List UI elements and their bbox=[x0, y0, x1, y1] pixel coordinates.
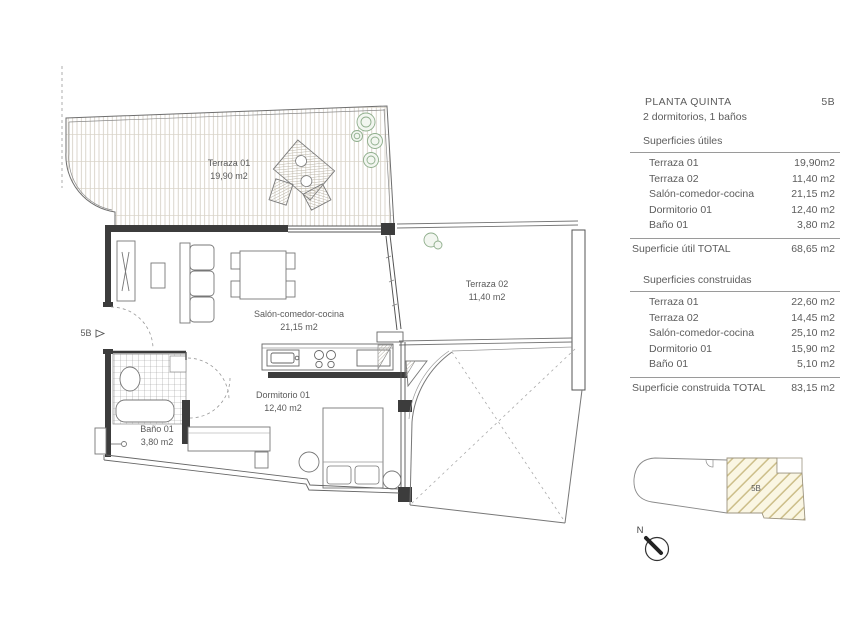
terraza2-name: Terraza 02 bbox=[466, 279, 509, 289]
row-value: 15,90 m2 bbox=[791, 342, 840, 358]
divider bbox=[630, 291, 840, 292]
pillow bbox=[327, 466, 351, 484]
plan-title: PLANTA QUINTA bbox=[645, 96, 732, 109]
kitchen bbox=[262, 344, 393, 370]
surface-row: Salón-comedor-cocina 25,10 m2 bbox=[630, 326, 840, 342]
total-label: Superficie útil TOTAL bbox=[632, 242, 731, 257]
row-label: Terraza 01 bbox=[649, 295, 699, 311]
side-table bbox=[151, 263, 165, 288]
row-value: 11,40 m2 bbox=[792, 172, 840, 188]
row-value: 25,10 m2 bbox=[791, 326, 840, 342]
row-value: 14,45 m2 bbox=[791, 311, 840, 327]
divider bbox=[630, 238, 840, 239]
dormitorio-name: Dormitorio 01 bbox=[256, 390, 310, 400]
row-label: Baño 01 bbox=[649, 357, 688, 373]
bathtub bbox=[116, 400, 174, 422]
row-value: 3,80 m2 bbox=[797, 218, 840, 234]
wardrobe bbox=[188, 427, 270, 451]
plan-subtitle: 2 dormitorios, 1 baños bbox=[643, 111, 840, 124]
terraza-02-area bbox=[397, 221, 585, 390]
panel-title-row: PLANTA QUINTA 5B bbox=[645, 96, 840, 109]
sofa-cushion bbox=[190, 245, 214, 270]
terraza1-name: Terraza 01 bbox=[208, 158, 251, 168]
cooktop-burner bbox=[316, 361, 322, 367]
shower-nook bbox=[170, 356, 186, 372]
row-label: Terraza 02 bbox=[649, 311, 699, 327]
door-handle-icon bbox=[122, 442, 127, 447]
divider bbox=[630, 152, 840, 153]
entrance-door-arc bbox=[111, 307, 153, 349]
sofa-cushion bbox=[190, 297, 214, 322]
row-value: 22,60 m2 bbox=[791, 295, 840, 311]
dormitorio-area: 12,40 m2 bbox=[264, 403, 302, 413]
nightstand bbox=[299, 452, 319, 472]
dining-table bbox=[240, 251, 286, 299]
terrace-side-wall bbox=[572, 230, 585, 390]
row-value: 21,15 m2 bbox=[791, 187, 840, 203]
row-label: Terraza 02 bbox=[649, 172, 699, 188]
row-label: Terraza 01 bbox=[649, 156, 699, 172]
row-value: 12,40 m2 bbox=[791, 203, 840, 219]
surface-row: Salón-comedor-cocina 21,15 m2 bbox=[630, 187, 840, 203]
open-roof-area bbox=[406, 347, 582, 523]
terraza2-area: 11,40 m2 bbox=[469, 292, 506, 302]
surface-row: Dormitorio 01 15,90 m2 bbox=[630, 342, 840, 358]
void-cross-line bbox=[411, 349, 575, 504]
entrance-unit-label: 5B bbox=[80, 328, 91, 338]
surface-row: Terraza 01 19,90m2 bbox=[630, 156, 840, 172]
entrance: 5B bbox=[80, 302, 153, 354]
bedroom-cabinet bbox=[255, 452, 268, 468]
exterior-shaft bbox=[95, 428, 106, 454]
total-value: 83,15 m2 bbox=[791, 381, 840, 396]
divider bbox=[630, 377, 840, 378]
sofa-back bbox=[180, 243, 190, 323]
north-arrow-icon: N bbox=[637, 525, 669, 561]
row-label: Salón-comedor-cocina bbox=[649, 326, 754, 342]
entrance-arrow-icon bbox=[96, 330, 104, 337]
pillow bbox=[355, 466, 379, 484]
washbasin bbox=[120, 367, 140, 391]
total-value: 68,65 m2 bbox=[791, 242, 840, 257]
utiles-heading: Superficies útiles bbox=[643, 135, 840, 148]
locator-unit-label: 5B bbox=[751, 484, 761, 493]
surface-row: Terraza 02 11,40 m2 bbox=[630, 172, 840, 188]
cooktop-burner bbox=[315, 351, 324, 360]
diagonal-glazing bbox=[377, 235, 403, 342]
surface-row: Baño 01 5,10 m2 bbox=[630, 357, 840, 373]
unit-badge: 5B bbox=[821, 96, 840, 109]
salon-area: 21,15 m2 bbox=[280, 322, 318, 332]
construidas-heading: Superficies construidas bbox=[643, 274, 840, 287]
row-label: Baño 01 bbox=[649, 218, 688, 234]
bano-name: Baño 01 bbox=[140, 424, 174, 434]
row-label: Dormitorio 01 bbox=[649, 203, 712, 219]
row-label: Dormitorio 01 bbox=[649, 342, 712, 358]
terraza-01-area bbox=[62, 66, 394, 226]
surface-row: Terraza 01 22,60 m2 bbox=[630, 295, 840, 311]
salon-name: Salón-comedor-cocina bbox=[254, 309, 344, 319]
bedroom-door-arc bbox=[190, 378, 230, 418]
sofa-cushion bbox=[190, 271, 214, 296]
total-label: Superficie construida TOTAL bbox=[632, 381, 766, 396]
plant-icon bbox=[424, 233, 442, 249]
row-label: Salón-comedor-cocina bbox=[649, 187, 754, 203]
total-row: Superficie útil TOTAL 68,65 m2 bbox=[630, 242, 840, 257]
bano-area: 3,80 m2 bbox=[141, 437, 174, 447]
north-label: N bbox=[637, 525, 644, 536]
bathroom-door-arc bbox=[188, 358, 229, 399]
building-locator: 5B bbox=[634, 458, 805, 520]
void-cross-line bbox=[452, 352, 565, 522]
surfaces-panel: PLANTA QUINTA 5B 2 dormitorios, 1 baños … bbox=[630, 96, 840, 396]
nightstand bbox=[383, 471, 401, 489]
terraza1-area: 19,90 m2 bbox=[210, 171, 248, 181]
surface-row: Dormitorio 01 12,40 m2 bbox=[630, 203, 840, 219]
surface-row: Terraza 02 14,45 m2 bbox=[630, 311, 840, 327]
row-value: 19,90m2 bbox=[794, 156, 840, 172]
total-row: Superficie construida TOTAL 83,15 m2 bbox=[630, 381, 840, 396]
cooktop-burner bbox=[327, 351, 336, 360]
surface-row: Baño 01 3,80 m2 bbox=[630, 218, 840, 234]
row-value: 5,10 m2 bbox=[797, 357, 840, 373]
cooktop-burner bbox=[328, 361, 334, 367]
